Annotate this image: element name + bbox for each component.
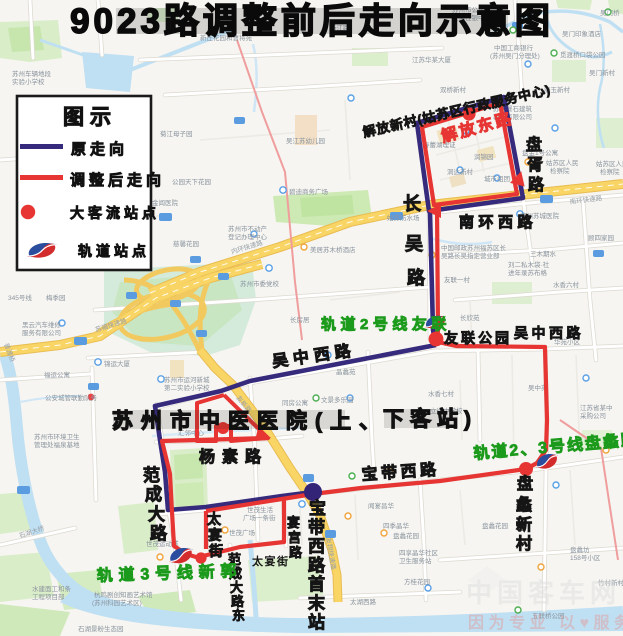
svg-text:中国工商银行: 中国工商银行 <box>494 43 534 52</box>
svg-text:胥: 胥 <box>527 156 543 174</box>
svg-text:西: 西 <box>308 537 325 556</box>
svg-text:江苏华某大厦: 江苏华某大厦 <box>412 55 452 64</box>
svg-text:觅渡桥口袋公园: 觅渡桥口袋公园 <box>560 50 606 59</box>
svg-text:长房居: 长房居 <box>290 315 310 324</box>
svg-text:下客站): 下客站) <box>383 407 477 431</box>
svg-text:大客流站点: 大客流站点 <box>70 205 160 221</box>
svg-text:末: 末 <box>308 593 326 613</box>
svg-text:工程项目部: 工程项目部 <box>32 592 65 601</box>
svg-text:采购公司: 采购公司 <box>580 411 606 420</box>
svg-text:范: 范 <box>143 465 160 485</box>
svg-text:梅季园: 梅季园 <box>46 293 66 302</box>
svg-text:管理处福泉基地: 管理处福泉基地 <box>34 440 80 449</box>
svg-text:路: 路 <box>308 555 326 575</box>
svg-text:路: 路 <box>528 175 545 194</box>
svg-text:世茂生活: 世茂生活 <box>247 505 274 514</box>
svg-text:方桂花园: 方桂花园 <box>404 577 430 586</box>
svg-text:路: 路 <box>150 523 168 543</box>
svg-text:原走向: 原走向 <box>71 140 128 158</box>
svg-text:盘: 盘 <box>526 135 542 154</box>
svg-text:345号线: 345号线 <box>8 293 32 302</box>
svg-text:9023路调整前后走向示意图: 9023路调整前后走向示意图 <box>70 2 554 41</box>
svg-text:进年录苏布格: 进年录苏布格 <box>508 268 548 277</box>
svg-text:晶蠡苑: 晶蠡苑 <box>336 367 356 376</box>
svg-text:刘二私木袋·社: 刘二私木袋·社 <box>508 260 550 269</box>
svg-text:大: 大 <box>148 504 165 524</box>
svg-text:江苏省某中: 江苏省某中 <box>580 403 613 412</box>
svg-text:友联一村: 友联一村 <box>444 275 471 284</box>
svg-text:站: 站 <box>308 612 325 632</box>
svg-text:盘蠡花园: 盘蠡花园 <box>482 521 508 530</box>
svg-text:闻宴昌华: 闻宴昌华 <box>368 501 395 510</box>
svg-text:蠡: 蠡 <box>516 495 532 514</box>
svg-text:宴: 宴 <box>208 527 222 543</box>
svg-text:顾四家园: 顾四家园 <box>588 233 614 242</box>
svg-text:慈馨花园: 慈馨花园 <box>173 239 199 248</box>
svg-text:太湖西路: 太湖西路 <box>350 597 377 606</box>
svg-text:长: 长 <box>403 194 422 214</box>
svg-text:宫: 宫 <box>288 530 301 545</box>
svg-text:苏州市不动产: 苏州市不动产 <box>228 224 268 233</box>
svg-text:公园天下花园: 公园天下花园 <box>172 177 211 186</box>
svg-text:(苏州科园艺术区): (苏州科园艺术区) <box>92 598 142 607</box>
svg-text:实验小学校: 实验小学校 <box>12 77 45 86</box>
svg-text:街: 街 <box>208 543 223 559</box>
svg-text:东: 东 <box>232 608 245 623</box>
svg-text:盘: 盘 <box>517 474 533 493</box>
svg-text:吴门新村: 吴门新村 <box>589 68 616 77</box>
svg-text:苏州车辆地段: 苏州车辆地段 <box>12 69 52 78</box>
svg-text:服务有限公司: 服务有限公司 <box>22 328 61 337</box>
svg-text:四季晶华: 四季晶华 <box>383 521 410 530</box>
svg-text:轨道2号线友联: 轨道2号线友联 <box>321 315 451 333</box>
svg-text:宝: 宝 <box>309 498 326 518</box>
svg-text:福运公寓: 福运公寓 <box>44 370 70 379</box>
svg-text:卫生服务站: 卫生服务站 <box>399 556 432 565</box>
svg-text:润锦园: 润锦园 <box>474 152 494 161</box>
svg-text:成: 成 <box>145 484 162 504</box>
svg-text:路: 路 <box>289 545 303 560</box>
svg-text:盘蠡花园: 盘蠡花园 <box>393 531 419 540</box>
svg-text:世茂广场: 世茂广场 <box>229 528 256 537</box>
svg-text:锦运大厦: 锦运大厦 <box>104 359 131 368</box>
svg-text:姑苏区人民: 姑苏区人民 <box>546 158 579 167</box>
svg-text:友联公园: 友联公园 <box>444 330 512 346</box>
svg-text:苏州市中医医院(上、: 苏州市中医医院(上、 <box>112 409 388 433</box>
svg-text:检察院: 检察院 <box>550 166 570 175</box>
svg-text:宴: 宴 <box>287 515 300 530</box>
svg-text:杨素路: 杨素路 <box>199 447 268 466</box>
svg-text:太宴街: 太宴街 <box>251 554 290 568</box>
svg-text:太: 太 <box>207 511 222 527</box>
svg-text:吴路长吴指定营业部: 吴路长吴指定营业部 <box>441 251 500 260</box>
svg-text:同房公寓: 同房公寓 <box>282 398 308 407</box>
svg-text:吴中西路: 吴中西路 <box>514 325 584 341</box>
svg-text:158号小区: 158号小区 <box>570 553 601 562</box>
svg-text:调整后走向: 调整后走向 <box>70 171 165 189</box>
svg-text:中国邮政苏州福苏区长: 中国邮政苏州福苏区长 <box>441 243 507 252</box>
svg-text:长欣苑: 长欣苑 <box>460 313 480 322</box>
svg-text:苏州市委党校: 苏州市委党校 <box>240 279 280 288</box>
svg-text:盘蠡坊: 盘蠡坊 <box>570 545 590 554</box>
svg-text:公安城管联勤队务: 公安城管联勤队务 <box>45 393 98 402</box>
svg-text:吴门印象酒店: 吴门印象酒店 <box>562 29 602 38</box>
svg-text:大: 大 <box>230 580 243 595</box>
svg-text:双桥新村: 双桥新村 <box>440 85 467 94</box>
svg-text:菊江母子园: 菊江母子园 <box>160 129 193 138</box>
svg-text:苏州市运河新城: 苏州市运河新城 <box>164 375 210 384</box>
svg-text:检察院: 检察院 <box>600 167 620 176</box>
svg-text:广场一条街: 广场一条街 <box>243 513 276 522</box>
svg-text:中国客车网: 中国客车网 <box>466 578 621 608</box>
svg-text:水建面工和条: 水建面工和条 <box>32 584 72 593</box>
svg-text:黑云汽车维修: 黑云汽车维修 <box>22 320 62 329</box>
svg-text:新: 新 <box>516 515 532 534</box>
svg-text:吴江苏幼儿园: 吴江苏幼儿园 <box>286 136 325 145</box>
svg-text:美居苏木桥酒店: 美居苏木桥酒店 <box>310 245 356 254</box>
svg-text:水香七村: 水香七村 <box>428 389 455 398</box>
svg-text:石湖景粉生态园: 石湖景粉生态园 <box>78 624 124 633</box>
svg-text:吴门桥: 吴门桥 <box>600 8 620 17</box>
svg-text:首: 首 <box>308 574 325 594</box>
svg-text:村: 村 <box>516 534 532 553</box>
svg-text:杭鸣剧创知画艺术馆: 杭鸣剧创知画艺术馆 <box>94 590 153 599</box>
svg-text:城市组团: 城市组团 <box>484 174 510 183</box>
svg-text:路: 路 <box>407 267 426 288</box>
svg-text:水香六村: 水香六村 <box>553 280 580 289</box>
svg-text:带: 带 <box>308 517 325 537</box>
svg-text:三木期水: 三木期水 <box>530 249 557 258</box>
svg-text:吴: 吴 <box>405 234 423 254</box>
svg-text:图示: 图示 <box>63 106 117 129</box>
svg-text:碧迪商务广场: 碧迪商务广场 <box>289 187 329 196</box>
svg-text:洞达新村: 洞达新村 <box>447 167 474 176</box>
svg-text:苏州市环境卫生: 苏州市环境卫生 <box>34 432 80 441</box>
svg-text:第二实验小学校: 第二实验小学校 <box>164 383 210 392</box>
svg-text:(苏州吴门分理处): (苏州吴门分理处) <box>490 51 540 60</box>
svg-text:四享晶华社区: 四享晶华社区 <box>399 548 439 557</box>
svg-text:文景多乐园: 文景多乐园 <box>321 395 354 404</box>
svg-text:南环西路: 南环西路 <box>459 213 537 231</box>
svg-text:轨道站点: 轨道站点 <box>78 243 150 259</box>
svg-text:姑苏区人民: 姑苏区人民 <box>596 159 623 168</box>
svg-text:路: 路 <box>231 594 245 609</box>
svg-text:因为专业 以♥服务: 因为专业 以♥服务 <box>468 613 623 632</box>
svg-text:姑苏防水场: 姑苏防水场 <box>387 213 420 222</box>
